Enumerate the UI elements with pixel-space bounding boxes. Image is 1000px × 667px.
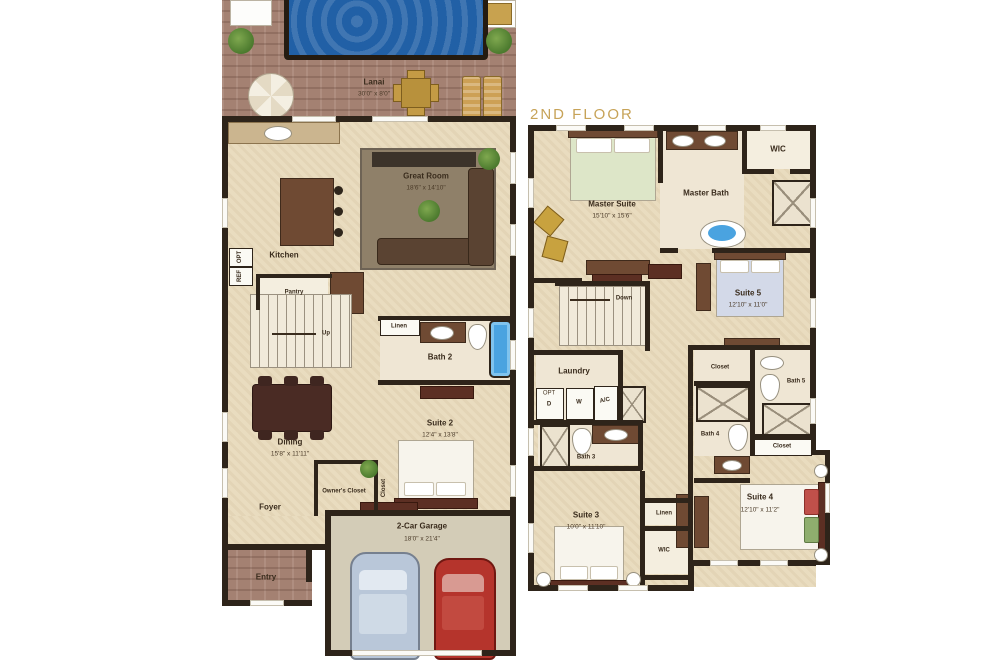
plant-icon	[418, 200, 440, 222]
nightstand-icon	[536, 572, 551, 587]
room-label-bath2: Bath 2	[427, 354, 453, 363]
linen-mid-label: Linen	[656, 511, 672, 518]
room-label-suite5: Suite 5	[735, 290, 761, 299]
room-dims-suite3: 10'0" x 11'10"	[567, 523, 606, 530]
room-label-great-room: Great Room	[403, 173, 449, 182]
sofa-icon	[468, 168, 494, 266]
opt-label: OPT	[237, 251, 243, 263]
plant-icon	[486, 28, 512, 54]
dresser-icon	[420, 386, 474, 399]
dresser-icon	[696, 263, 711, 311]
room-label-master-suite: Master Suite	[588, 201, 636, 210]
pillow-icon	[720, 260, 749, 273]
car-red-icon	[434, 558, 496, 660]
pillow-icon	[436, 482, 466, 496]
shower-icon	[762, 403, 812, 437]
sink-icon	[760, 356, 784, 370]
linen-label: Linen	[391, 324, 407, 331]
room-dims-great-room: 18'6" x 14'10"	[406, 184, 445, 191]
deck-pad-left	[230, 0, 272, 26]
pillow-icon	[614, 138, 650, 153]
room-label-kitchen: Kitchen	[269, 252, 298, 261]
chair-icon	[258, 430, 272, 440]
patio-table-top	[401, 78, 431, 108]
bath2-sink-icon	[430, 326, 454, 340]
second-floor-title: 2ND FLOOR	[530, 106, 634, 123]
room-dims-suite5: 12'10" x 11'0"	[729, 301, 768, 308]
room-label-dining: Dining	[278, 439, 303, 448]
room-dims-suite2: 12'4" x 13'8"	[422, 431, 458, 438]
pillow-icon	[404, 482, 434, 496]
sofa-icon	[377, 238, 475, 265]
room-dims-master-suite: 15'10" x 15'6"	[592, 212, 631, 219]
pillow-icon	[804, 517, 819, 543]
linen-side-label: Linen	[689, 406, 695, 422]
dryer-label: D	[547, 402, 551, 409]
room-label-bath4: Bath 4	[698, 432, 722, 439]
room-label-wic: WIC	[770, 146, 786, 155]
dryer-opt-label: OPT	[543, 391, 555, 398]
washer-label: W	[576, 400, 582, 407]
chair-icon	[310, 430, 324, 440]
console-icon	[648, 264, 682, 279]
second-floor-plan: 2ND FLOOR	[528, 98, 834, 603]
room-label-suite3: Suite 3	[573, 512, 599, 521]
shower-icon	[696, 386, 750, 422]
spa-icon	[486, 3, 512, 25]
ref-label: REF	[237, 270, 243, 282]
room-label-suite4: Suite 4	[747, 494, 773, 503]
room-label-suite2: Suite 2	[427, 420, 453, 429]
plant-icon	[478, 148, 500, 170]
floorplan-image: Lanai 30'0" x 8'0" OPT	[0, 0, 1000, 667]
bathtub-icon	[489, 320, 512, 378]
room-dims-suite4: 12'10" x 11'2"	[741, 506, 780, 513]
closet-bottom-label: Closet	[773, 444, 791, 451]
room-dims-lanai: 30'0" x 8'0"	[358, 90, 390, 97]
sink-icon	[672, 135, 694, 147]
stool-icon	[334, 186, 343, 195]
stairs-up-label: Up	[322, 331, 330, 338]
pillow-icon	[751, 260, 780, 273]
owners-closet-label: Owner's Closet	[321, 489, 367, 496]
first-floor-plan: Lanai 30'0" x 8'0" OPT	[222, 0, 516, 658]
tv-console-icon	[372, 152, 476, 167]
nightstand-icon	[814, 548, 828, 562]
room-label-lanai: Lanai	[364, 79, 385, 88]
chair-icon	[284, 376, 298, 386]
wic-bottom-label: WIC	[658, 548, 670, 555]
room-dims-garage: 18'0" x 21'4"	[404, 535, 440, 542]
stool-icon	[334, 228, 343, 237]
room-dims-dining: 15'8" x 11'11"	[271, 450, 309, 457]
pillow-icon	[590, 566, 618, 580]
pillow-icon	[560, 566, 588, 580]
room-label-foyer: Foyer	[259, 504, 281, 513]
pillow-icon	[576, 138, 612, 153]
dresser-icon	[586, 260, 650, 275]
stairs-down	[559, 286, 647, 346]
sink-icon	[704, 135, 726, 147]
room-label-garage: 2-Car Garage	[397, 523, 447, 532]
room-label-laundry: Laundry	[558, 368, 590, 377]
chair-icon	[310, 376, 324, 386]
room-label-pantry: Pantry	[285, 290, 304, 297]
umbrella-icon	[248, 73, 294, 119]
sink-icon	[604, 429, 628, 441]
room-label-entry: Entry	[256, 574, 276, 583]
car-silver-icon	[350, 552, 420, 660]
pool	[284, 0, 488, 60]
master-tub-icon	[708, 225, 736, 241]
chair-icon	[258, 376, 272, 386]
dining-table-icon	[252, 384, 332, 432]
stairs-up	[250, 294, 352, 368]
plant-icon	[228, 28, 254, 54]
dresser-icon	[694, 496, 709, 548]
closet-label: Closet	[381, 479, 387, 497]
stairs-down-label: Down	[616, 296, 632, 303]
stool-icon	[334, 207, 343, 216]
kitchen-island	[280, 178, 334, 246]
room-label-master-bath: Master Bath	[683, 190, 729, 199]
room-label-bath5: Bath 5	[785, 379, 807, 386]
shower-icon	[540, 425, 570, 469]
pillow-icon	[804, 489, 819, 515]
sink-icon	[722, 460, 742, 471]
shower-icon	[772, 180, 814, 226]
room-label-bath3: Bath 3	[577, 455, 595, 462]
kitchen-sink-icon	[264, 126, 292, 141]
closet-top-label: Closet	[711, 365, 729, 372]
nightstand-icon	[814, 464, 828, 478]
plant-icon	[360, 460, 378, 478]
